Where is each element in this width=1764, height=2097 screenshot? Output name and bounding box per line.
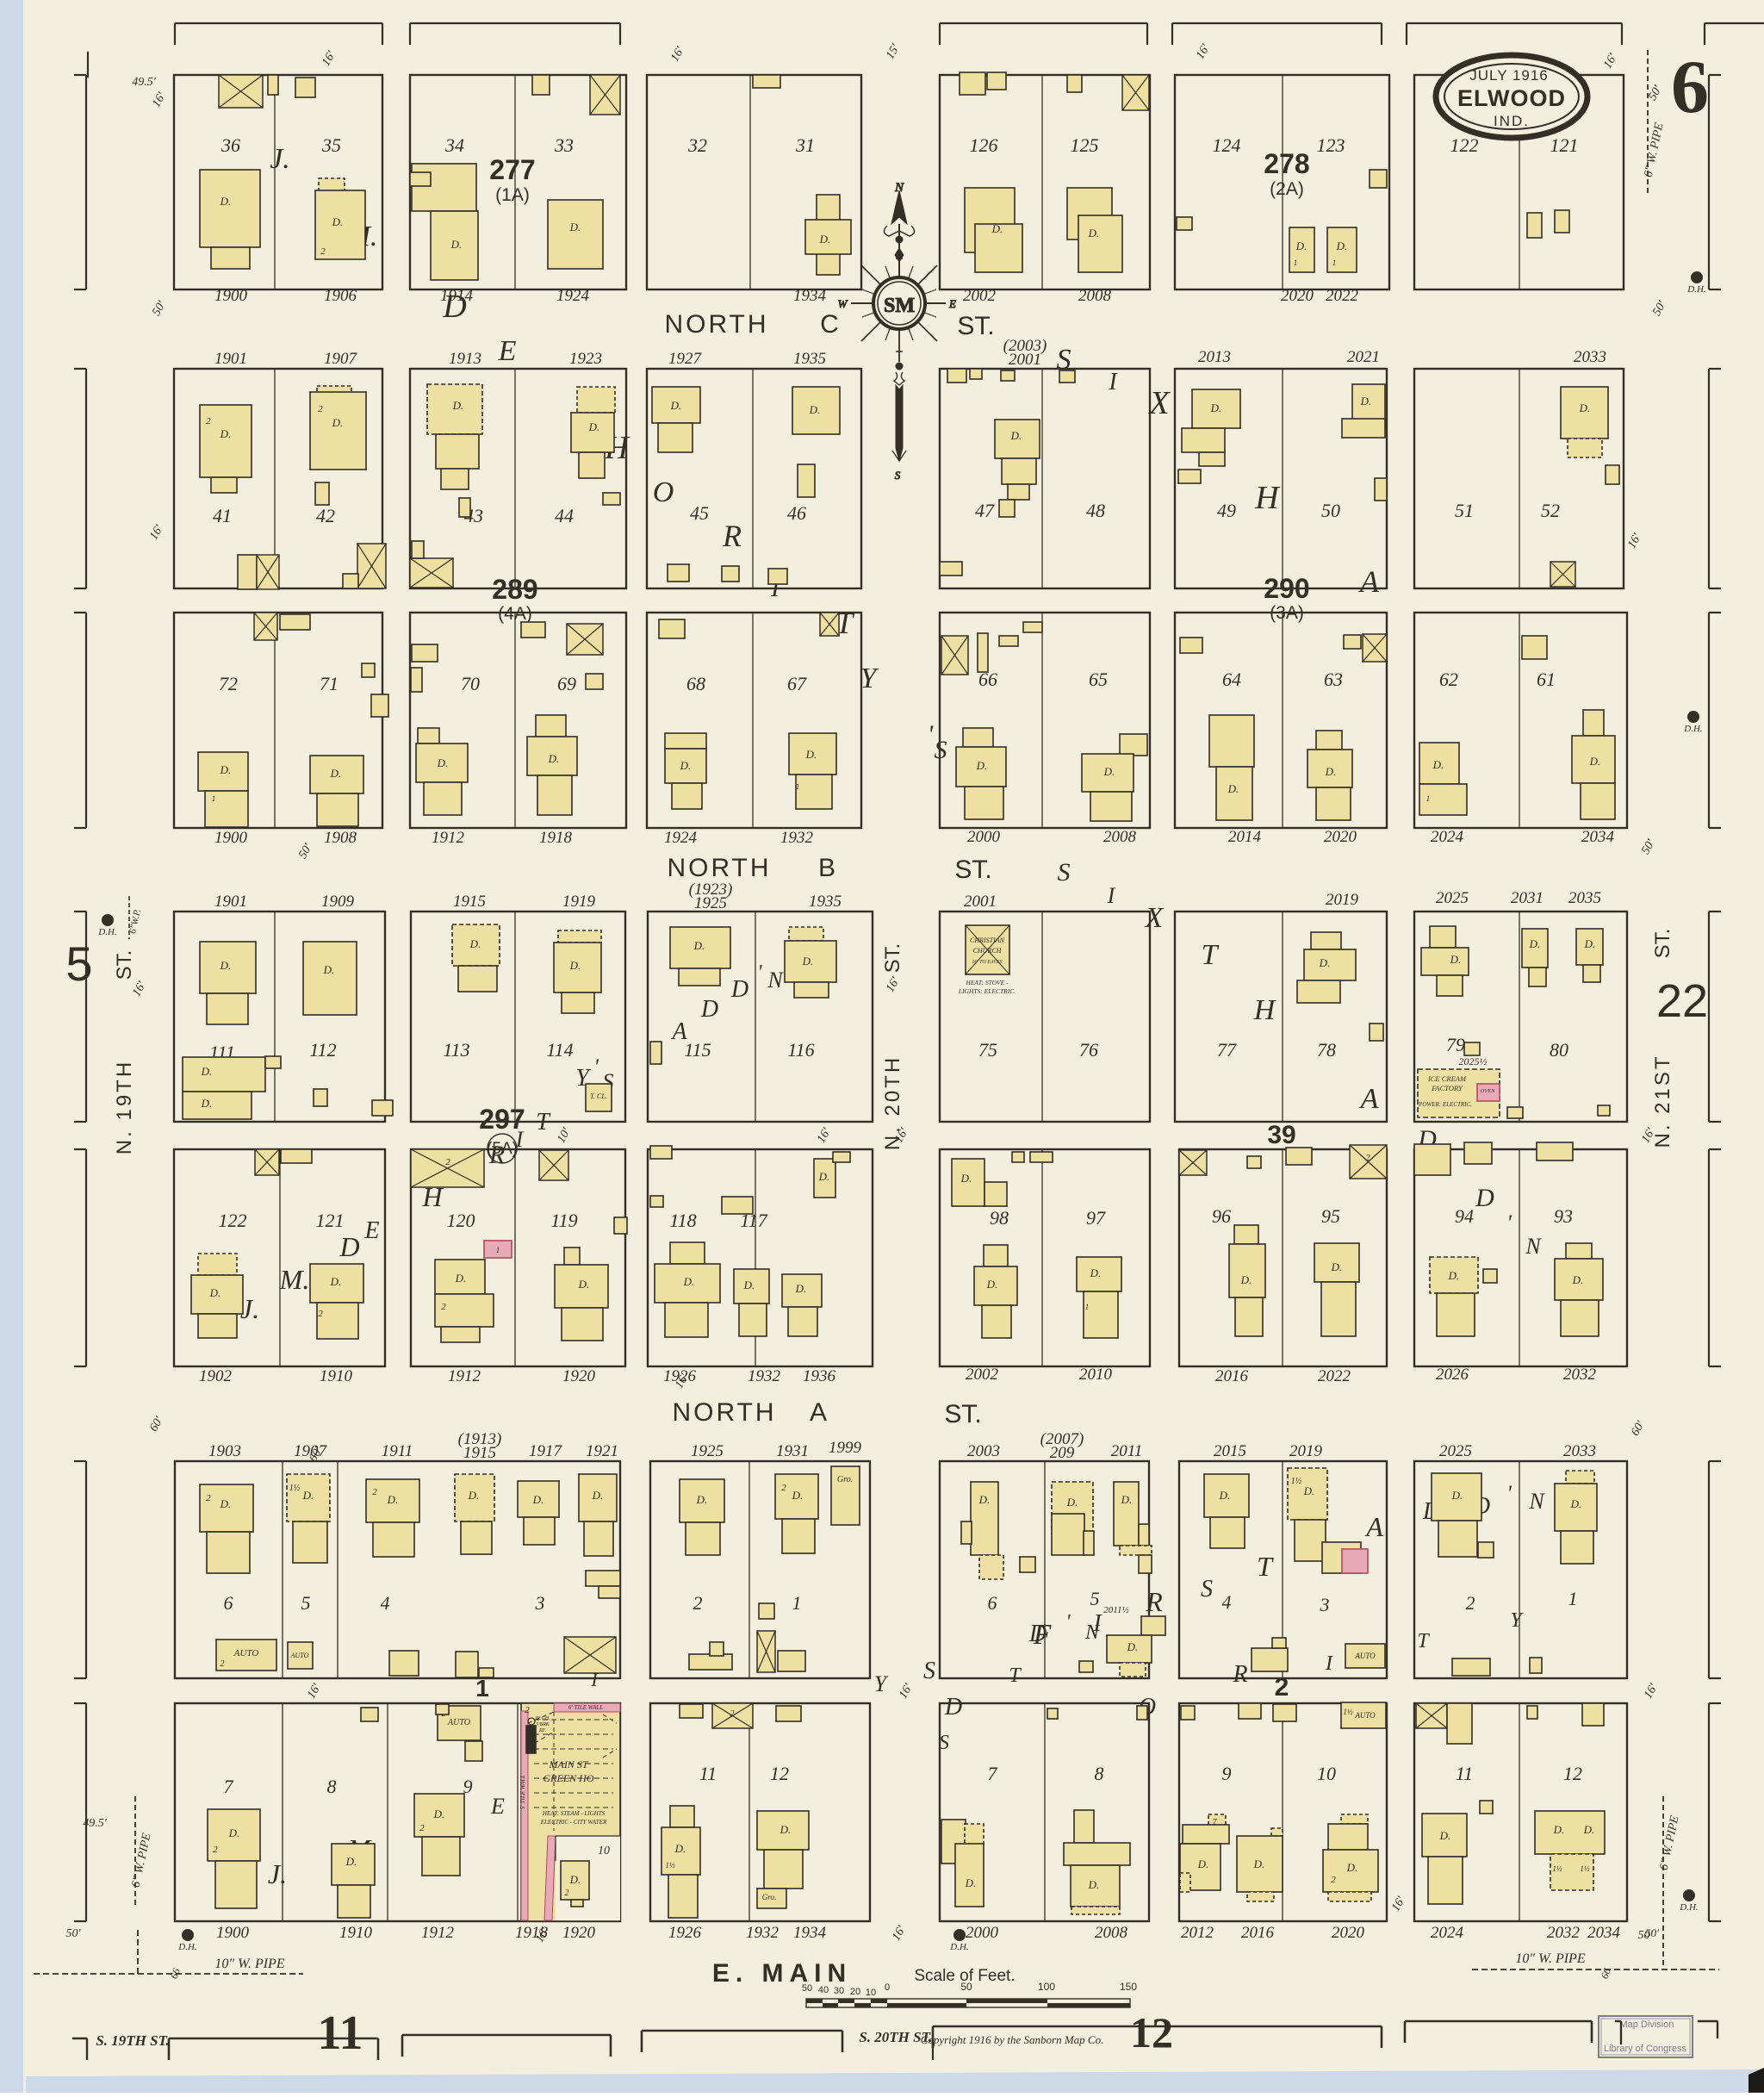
svg-text:T. CL.: T. CL. (590, 1092, 607, 1100)
svg-text:63: 63 (1324, 669, 1343, 690)
svg-text:1935: 1935 (793, 350, 826, 368)
svg-text:40: 40 (818, 1985, 829, 1995)
svg-text:CHURCH: CHURCH (973, 947, 1003, 955)
svg-text:1907: 1907 (294, 1442, 328, 1460)
svg-text:ICE CREAM: ICE CREAM (1427, 1074, 1467, 1083)
svg-text:78: 78 (1317, 1039, 1336, 1061)
svg-text:2: 2 (318, 404, 323, 414)
svg-text:8: 8 (327, 1776, 337, 1797)
svg-text:5' TILE WALL: 5' TILE WALL (519, 1775, 526, 1809)
svg-text:1934: 1934 (793, 1924, 827, 1942)
svg-text:T: T (1202, 939, 1220, 971)
svg-text:D.: D. (330, 767, 342, 780)
svg-text:D.: D. (1572, 1273, 1584, 1286)
svg-text:AUTO: AUTO (290, 1652, 309, 1659)
svg-text:D: D (944, 1694, 962, 1721)
svg-text:D.: D. (960, 1172, 972, 1185)
svg-text:2002: 2002 (963, 287, 997, 305)
svg-text:D.: D. (578, 1278, 590, 1291)
svg-text:D.: D. (220, 195, 232, 208)
svg-text:95: 95 (1321, 1205, 1340, 1227)
svg-text:96: 96 (1212, 1205, 1231, 1227)
svg-text:D.: D. (1010, 429, 1022, 442)
svg-text:10" W. PIPE: 10" W. PIPE (214, 1957, 284, 1971)
svg-text:D.: D. (805, 748, 817, 761)
svg-text:CHRISTIAN: CHRISTIAN (970, 936, 1005, 944)
svg-text:D.H.: D.H. (97, 927, 116, 937)
svg-text:E. MAIN: E. MAIN (712, 1959, 852, 1988)
svg-text:AUTO: AUTO (1354, 1711, 1376, 1720)
svg-text:IR.GH.: IR.GH. (534, 1716, 550, 1721)
svg-text:D.: D. (818, 1170, 830, 1183)
svg-text:39: 39 (1267, 1121, 1295, 1149)
svg-text:1927: 1927 (668, 350, 703, 368)
svg-text:2013: 2013 (1198, 348, 1231, 366)
svg-text:D.: D. (683, 1275, 695, 1288)
svg-text:O: O (653, 476, 674, 508)
svg-text:D: D (1028, 1621, 1047, 1647)
svg-text:HEAT: STOVE -: HEAT: STOVE - (965, 979, 1009, 986)
svg-text:11: 11 (699, 1763, 717, 1784)
svg-text:1919: 1919 (562, 893, 596, 911)
svg-text:GREEN HO: GREEN HO (543, 1772, 594, 1784)
svg-text:D.: D. (323, 963, 335, 976)
svg-text:D.: D. (696, 1493, 708, 1506)
svg-text:9: 9 (1222, 1763, 1232, 1784)
svg-text:RF.: RF. (538, 1728, 546, 1733)
svg-text:1926: 1926 (663, 1367, 697, 1385)
svg-text:1910: 1910 (320, 1367, 353, 1385)
svg-text:ELWOOD: ELWOOD (1457, 85, 1566, 111)
svg-text:T: T (536, 1109, 551, 1136)
svg-text:C: C (820, 310, 839, 339)
svg-text:121: 121 (1550, 134, 1579, 156)
svg-text:1908: 1908 (324, 829, 357, 847)
svg-text:30: 30 (834, 1986, 844, 1996)
svg-text:35: 35 (321, 134, 341, 156)
svg-text:112: 112 (309, 1039, 336, 1061)
svg-text:2003: 2003 (967, 1442, 1000, 1460)
svg-text:12: 12 (1130, 2008, 1173, 2057)
svg-text:44: 44 (555, 505, 574, 526)
svg-text:D.: D. (1127, 1640, 1139, 1653)
svg-text:D.: D. (1450, 953, 1462, 966)
svg-text:33: 33 (554, 134, 574, 156)
svg-text:': ' (1506, 1481, 1512, 1506)
svg-text:D.: D. (802, 955, 814, 968)
svg-text:OVEN: OVEN (1481, 1088, 1496, 1094)
svg-text:AUTO: AUTO (233, 1648, 259, 1658)
svg-text:50: 50 (1321, 500, 1340, 521)
svg-text:1903: 1903 (208, 1442, 241, 1460)
svg-text:2032: 2032 (1547, 1924, 1581, 1942)
svg-text:10: 10 (866, 1988, 876, 1998)
svg-text:D.: D. (743, 1279, 755, 1291)
svg-text:2: 2 (206, 416, 211, 426)
svg-text:I: I (1107, 883, 1116, 908)
svg-text:D.: D. (1303, 1484, 1315, 1497)
svg-text:2: 2 (1466, 1592, 1475, 1614)
svg-text:277: 277 (489, 154, 535, 185)
svg-text:S. 19TH ST.: S. 19TH ST. (96, 2032, 169, 2049)
svg-text:51: 51 (1455, 500, 1474, 521)
svg-text:S: S (1058, 858, 1071, 887)
svg-text:2002: 2002 (966, 1366, 999, 1384)
svg-text:D.: D. (1360, 395, 1372, 408)
svg-text:X: X (1144, 902, 1165, 934)
svg-text:100: 100 (1038, 1981, 1055, 1993)
svg-text:1918: 1918 (515, 1924, 549, 1942)
svg-text:AUTO: AUTO (1354, 1652, 1376, 1660)
svg-text:Library of Congress: Library of Congress (1604, 2044, 1686, 2054)
svg-text:2: 2 (419, 1823, 425, 1833)
svg-text:69: 69 (557, 673, 576, 694)
svg-text:D.: D. (345, 1855, 357, 1868)
svg-text:I: I (1108, 369, 1118, 395)
svg-text:2: 2 (320, 246, 326, 257)
svg-text:D.: D. (1336, 240, 1348, 252)
svg-text:2: 2 (525, 1705, 530, 1715)
svg-text:D.H.: D.H. (1683, 724, 1702, 734)
svg-text:2016: 2016 (1215, 1367, 1249, 1385)
svg-text:HEAT: STEAM - LIGHTS: HEAT: STEAM - LIGHTS (542, 1810, 606, 1817)
svg-text:8: 8 (1095, 1763, 1104, 1784)
svg-text:H: H (1254, 480, 1281, 516)
svg-text:1: 1 (475, 1675, 489, 1702)
svg-text:36: 36 (220, 134, 240, 156)
svg-text:D.: D. (588, 420, 600, 433)
svg-text:1900: 1900 (216, 1924, 250, 1942)
svg-text:I: I (1325, 1652, 1333, 1675)
svg-text:6' TILE WALL: 6' TILE WALL (568, 1704, 603, 1711)
svg-text:1926: 1926 (668, 1924, 702, 1942)
svg-text:49.5': 49.5' (83, 1817, 108, 1830)
svg-text:6: 6 (988, 1592, 997, 1614)
svg-text:2011½: 2011½ (1103, 1605, 1128, 1615)
svg-text:D.: D. (433, 1808, 445, 1820)
svg-text:D.: D. (592, 1489, 604, 1502)
svg-text:D.: D. (387, 1493, 399, 1506)
svg-text:97: 97 (1086, 1207, 1106, 1229)
svg-text:1932: 1932 (780, 829, 814, 847)
svg-text:D.: D. (452, 399, 464, 412)
svg-text:D: D (700, 996, 718, 1023)
svg-text:I: I (515, 1127, 525, 1152)
svg-text:R: R (1145, 1586, 1163, 1617)
svg-text:2019: 2019 (1326, 891, 1359, 909)
svg-text:1½: 1½ (665, 1861, 675, 1870)
svg-text:1: 1 (796, 782, 800, 791)
svg-text:D.: D. (437, 756, 449, 769)
svg-text:2011: 2011 (1111, 1442, 1143, 1460)
svg-text:2026: 2026 (1436, 1366, 1469, 1384)
svg-text:E: E (948, 297, 956, 310)
svg-text:0: 0 (885, 1982, 890, 1993)
svg-text:2008: 2008 (1103, 828, 1137, 846)
svg-text:SM: SM (884, 295, 915, 317)
svg-text:75: 75 (978, 1039, 997, 1061)
svg-text:X: X (1147, 385, 1171, 421)
svg-text:D.: D. (680, 759, 692, 772)
svg-text:1909: 1909 (321, 893, 355, 911)
svg-text:D.: D. (569, 959, 581, 972)
svg-text:D.: D. (1439, 1829, 1451, 1842)
svg-text:(3A): (3A) (1270, 603, 1304, 623)
svg-text:N: N (767, 968, 784, 992)
svg-text:D: D (442, 289, 466, 325)
svg-text:D: D (730, 976, 748, 1003)
svg-text:1925: 1925 (694, 894, 727, 912)
svg-text:50': 50' (66, 1927, 82, 1940)
svg-text:122: 122 (219, 1210, 247, 1231)
svg-text:2: 2 (206, 1493, 211, 1503)
svg-text:42: 42 (316, 505, 335, 526)
svg-text:D.: D. (1090, 1266, 1102, 1279)
svg-text:120: 120 (447, 1210, 475, 1231)
svg-text:D.: D. (1529, 937, 1541, 950)
svg-text:ST.: ST. (113, 950, 136, 980)
svg-text:T: T (1009, 1665, 1022, 1687)
svg-text:2: 2 (445, 1157, 450, 1167)
svg-text:1: 1 (1085, 1303, 1090, 1311)
svg-text:2008: 2008 (1078, 287, 1112, 305)
svg-text:1925: 1925 (691, 1442, 724, 1460)
svg-text:D.: D. (332, 416, 344, 429)
svg-text:11: 11 (1456, 1763, 1473, 1784)
svg-text:D.: D. (1103, 765, 1115, 778)
svg-text:1: 1 (792, 1592, 802, 1614)
svg-text:D.: D. (330, 1275, 342, 1288)
svg-text:Gro.: Gro. (762, 1893, 776, 1901)
svg-text:49: 49 (1217, 500, 1236, 521)
svg-text:1917: 1917 (529, 1442, 563, 1460)
svg-text:1901: 1901 (214, 350, 247, 368)
svg-text:R: R (488, 1141, 505, 1169)
svg-text:3: 3 (1320, 1594, 1330, 1615)
svg-text:D.: D. (991, 222, 1003, 235)
svg-text:7: 7 (224, 1776, 234, 1797)
svg-text:': ' (928, 720, 934, 749)
svg-text:2033: 2033 (1574, 348, 1606, 366)
svg-text:D.: D. (978, 1493, 991, 1506)
svg-text:278: 278 (1264, 148, 1309, 179)
svg-text:2020: 2020 (1281, 287, 1314, 305)
svg-text:1915: 1915 (453, 893, 486, 911)
svg-text:': ' (1506, 1210, 1512, 1235)
svg-text:48: 48 (1086, 500, 1105, 521)
svg-text:D.: D. (809, 403, 821, 416)
svg-text:D: D (1475, 1184, 1494, 1212)
svg-text:JULY 1916: JULY 1916 (1469, 67, 1549, 84)
svg-text:1911: 1911 (382, 1442, 413, 1460)
svg-text:22: 22 (1656, 975, 1708, 1027)
svg-text:47: 47 (975, 500, 995, 521)
svg-text:72: 72 (219, 673, 238, 694)
svg-text:1: 1 (1426, 794, 1431, 803)
svg-text:N. 19TH: N. 19TH (113, 1060, 136, 1154)
svg-text:D.: D. (976, 759, 988, 772)
svg-text:MAIN ST: MAIN ST (549, 1758, 589, 1770)
svg-text:2: 2 (693, 1592, 703, 1614)
svg-text:D.H.: D.H. (177, 1942, 196, 1952)
svg-text:2001: 2001 (964, 893, 997, 911)
svg-text:80: 80 (1550, 1039, 1568, 1061)
svg-text:289: 289 (492, 574, 537, 605)
svg-text:1901: 1901 (214, 893, 247, 911)
svg-text:2032: 2032 (1563, 1366, 1597, 1384)
svg-text:D.: D. (332, 215, 344, 228)
svg-text:D.: D. (1432, 758, 1444, 771)
svg-text:1907: 1907 (324, 350, 358, 368)
svg-text:D.: D. (1346, 1861, 1358, 1874)
svg-text:D.: D. (674, 1842, 686, 1855)
svg-text:4: 4 (381, 1592, 390, 1614)
svg-text:ST.: ST. (944, 1400, 981, 1428)
svg-text:5: 5 (1090, 1588, 1100, 1609)
svg-text:D.: D. (792, 1489, 804, 1502)
svg-text:50: 50 (802, 1983, 812, 1994)
svg-text:2: 2 (730, 1709, 735, 1719)
svg-text:D.: D. (455, 1272, 467, 1285)
svg-text:A: A (670, 1018, 687, 1045)
svg-text:2024: 2024 (1431, 1924, 1464, 1942)
svg-text:64: 64 (1222, 669, 1241, 690)
svg-text:1932: 1932 (746, 1924, 780, 1942)
svg-text:76: 76 (1079, 1039, 1098, 1061)
svg-text:3: 3 (535, 1592, 545, 1614)
svg-text:D.H.: D.H. (1679, 1902, 1698, 1913)
svg-text:D.: D. (201, 1065, 213, 1078)
svg-text:1900: 1900 (214, 287, 248, 305)
svg-text:S: S (939, 1732, 949, 1754)
svg-text:50: 50 (960, 1981, 972, 1993)
svg-text:': ' (1065, 1611, 1071, 1633)
svg-text:11: 11 (318, 2007, 363, 2060)
svg-text:7: 7 (988, 1763, 998, 1784)
svg-text:2033: 2033 (1563, 1442, 1596, 1460)
svg-text:R: R (1232, 1661, 1247, 1688)
svg-text:Copyright 1916 by the Sanborn: Copyright 1916 by the Sanborn Map Co. (921, 2033, 1104, 2046)
svg-text:93: 93 (1554, 1205, 1573, 1227)
svg-text:S: S (895, 469, 901, 482)
svg-text:D.: D. (1579, 401, 1591, 414)
svg-text:D.: D. (1088, 1878, 1100, 1891)
svg-text:S: S (935, 736, 947, 764)
svg-text:D.: D. (1583, 1823, 1595, 1836)
svg-text:1999: 1999 (829, 1439, 862, 1457)
svg-text:LIGHTS: ELECTRIC.: LIGHTS: ELECTRIC. (958, 987, 1016, 995)
svg-text:68: 68 (686, 673, 705, 694)
svg-text:2: 2 (441, 1302, 446, 1312)
svg-text:D.: D. (1210, 401, 1222, 414)
svg-text:2: 2 (781, 1483, 786, 1493)
svg-text:D.: D. (1197, 1857, 1209, 1870)
svg-text:1: 1 (1294, 258, 1298, 267)
svg-text:2024: 2024 (1431, 828, 1464, 846)
svg-text:119: 119 (550, 1210, 577, 1231)
svg-text:1½: 1½ (1343, 1708, 1353, 1716)
svg-text:N: N (1525, 1234, 1542, 1259)
svg-text:D.H.: D.H. (1686, 284, 1705, 295)
svg-text:10" W. PIPE: 10" W. PIPE (1515, 1951, 1585, 1966)
svg-text:67: 67 (787, 673, 807, 694)
svg-text:ST.: ST. (881, 943, 904, 974)
svg-text:D.: D. (670, 399, 682, 412)
svg-text:2: 2 (318, 1309, 323, 1319)
svg-text:118: 118 (669, 1210, 696, 1231)
svg-text:5: 5 (65, 936, 92, 991)
svg-text:49.5': 49.5' (132, 76, 157, 89)
svg-text:1: 1 (1332, 258, 1337, 267)
svg-text:98: 98 (990, 1207, 1009, 1229)
svg-text:A: A (1358, 564, 1380, 599)
svg-text:1915: 1915 (463, 1444, 496, 1462)
svg-text:65: 65 (1089, 669, 1108, 690)
svg-text:ST.: ST. (954, 856, 991, 884)
svg-text:209: 209 (1050, 1444, 1075, 1462)
svg-text:41: 41 (213, 505, 232, 526)
svg-text:2022: 2022 (1318, 1367, 1351, 1385)
svg-text:D.: D. (986, 1278, 998, 1291)
svg-text:2015: 2015 (1214, 1442, 1246, 1460)
svg-text:2025½: 2025½ (1459, 1055, 1488, 1067)
svg-text:NORTH: NORTH (667, 854, 771, 882)
svg-text:1: 1 (1568, 1588, 1578, 1609)
svg-text:5'BRK: 5'BRK (536, 1722, 550, 1727)
svg-text:150: 150 (1120, 1981, 1137, 1993)
svg-text:31: 31 (795, 134, 815, 156)
svg-text:POWER: ELECTRIC.: POWER: ELECTRIC. (1418, 1101, 1472, 1108)
svg-text:D.: D. (220, 959, 232, 972)
svg-text:N: N (894, 181, 904, 195)
svg-text:S: S (1201, 1576, 1213, 1602)
svg-text:E: E (498, 335, 517, 367)
svg-text:16' TO EAVES: 16' TO EAVES (972, 960, 1002, 965)
svg-text:1½: 1½ (1580, 1864, 1590, 1873)
svg-text:6: 6 (224, 1592, 233, 1614)
svg-text:52: 52 (1541, 500, 1560, 521)
svg-text:121: 121 (316, 1210, 345, 1231)
svg-text:2008: 2008 (1095, 1924, 1128, 1942)
svg-text:62: 62 (1439, 669, 1458, 690)
svg-text:D.: D. (220, 1497, 232, 1510)
svg-text:D.: D. (1451, 1489, 1463, 1502)
svg-text:D.: D. (1219, 1489, 1231, 1502)
svg-text:D.: D. (1584, 937, 1596, 950)
svg-text:2031: 2031 (1511, 889, 1543, 907)
svg-text:D.: D. (228, 1826, 240, 1839)
svg-text:2001: 2001 (1009, 351, 1041, 369)
svg-text:2035: 2035 (1568, 889, 1601, 907)
svg-text:A: A (810, 1398, 827, 1427)
svg-text:2034: 2034 (1587, 1924, 1621, 1942)
svg-text:1918: 1918 (539, 829, 573, 847)
svg-text:1902: 1902 (199, 1367, 233, 1385)
svg-text:1½: 1½ (1552, 1864, 1562, 1873)
svg-text:D.: D. (795, 1282, 807, 1295)
svg-text:R: R (722, 519, 742, 553)
svg-text:50': 50' (1638, 1929, 1654, 1942)
svg-text:D.: D. (220, 763, 232, 776)
svg-text:N: N (1528, 1489, 1545, 1514)
svg-text:D.: D. (1121, 1493, 1133, 1506)
svg-text:N: N (1084, 1621, 1101, 1644)
svg-text:1912: 1912 (448, 1367, 481, 1385)
svg-text:IND.: IND. (1494, 113, 1530, 129)
svg-text:123: 123 (1317, 134, 1345, 156)
svg-text:1936: 1936 (803, 1367, 836, 1385)
svg-text:D.: D. (1240, 1273, 1252, 1286)
